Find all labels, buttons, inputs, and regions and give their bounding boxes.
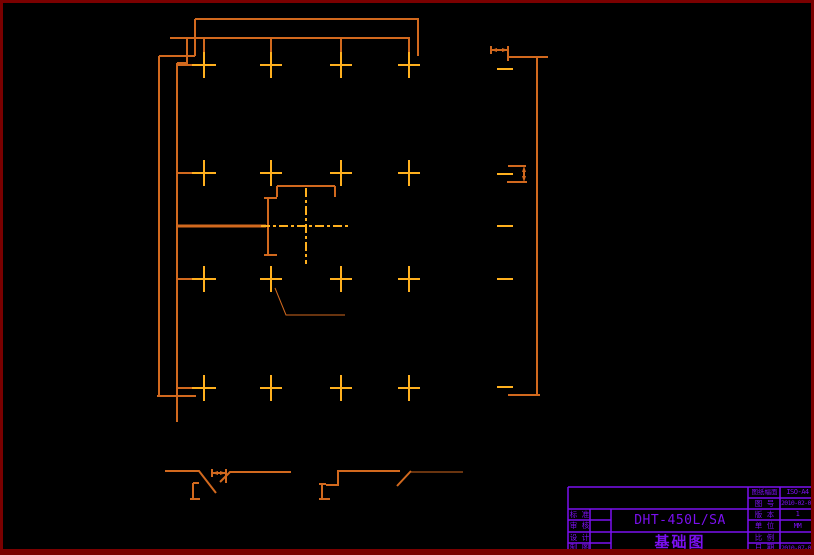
cad-sheet: 标 准 审 核 设 计 制 图 DHT-450L/SA 基础图 图纸幅面 图 号… bbox=[0, 0, 814, 555]
section-detail-left bbox=[165, 469, 291, 499]
tb-right-label-version: 版 本 bbox=[749, 509, 780, 520]
tb-value-date: 2010-07-01 bbox=[781, 543, 814, 553]
tb-value-unit: MM bbox=[781, 520, 814, 532]
tb-value-sheet-size: ISO-A4 bbox=[781, 487, 814, 498]
tb-right-label-sheet-size: 图纸幅面 bbox=[749, 487, 780, 498]
drawing-canvas[interactable] bbox=[3, 3, 814, 555]
right-dimension-lines bbox=[490, 46, 548, 395]
tb-value-scale bbox=[781, 532, 814, 543]
center-pit-centerlines bbox=[261, 188, 351, 264]
tb-right-label-scale: 比 例 bbox=[749, 532, 780, 543]
tb-value-version: 1 bbox=[781, 509, 814, 520]
tb-right-label-unit: 单 位 bbox=[749, 520, 780, 532]
tb-left-label-drafting: 制 图 bbox=[569, 543, 590, 553]
tb-left-label-design: 设 计 bbox=[569, 532, 590, 543]
tb-model-number: DHT-450L/SA bbox=[612, 509, 748, 532]
section-detail-right bbox=[319, 471, 463, 499]
tb-left-label-review: 审 核 bbox=[569, 520, 590, 532]
tb-right-label-date: 日 期 bbox=[749, 543, 780, 553]
foundation-plan-outline bbox=[157, 19, 418, 422]
tb-left-label-standard: 标 准 bbox=[569, 509, 590, 520]
tb-right-label-drawing-no: 图 号 bbox=[749, 498, 780, 509]
right-centerline-ticks bbox=[497, 69, 513, 387]
tb-value-drawing-no: 2010-02-01 bbox=[781, 498, 814, 509]
tb-drawing-title: 基础图 bbox=[612, 532, 748, 553]
